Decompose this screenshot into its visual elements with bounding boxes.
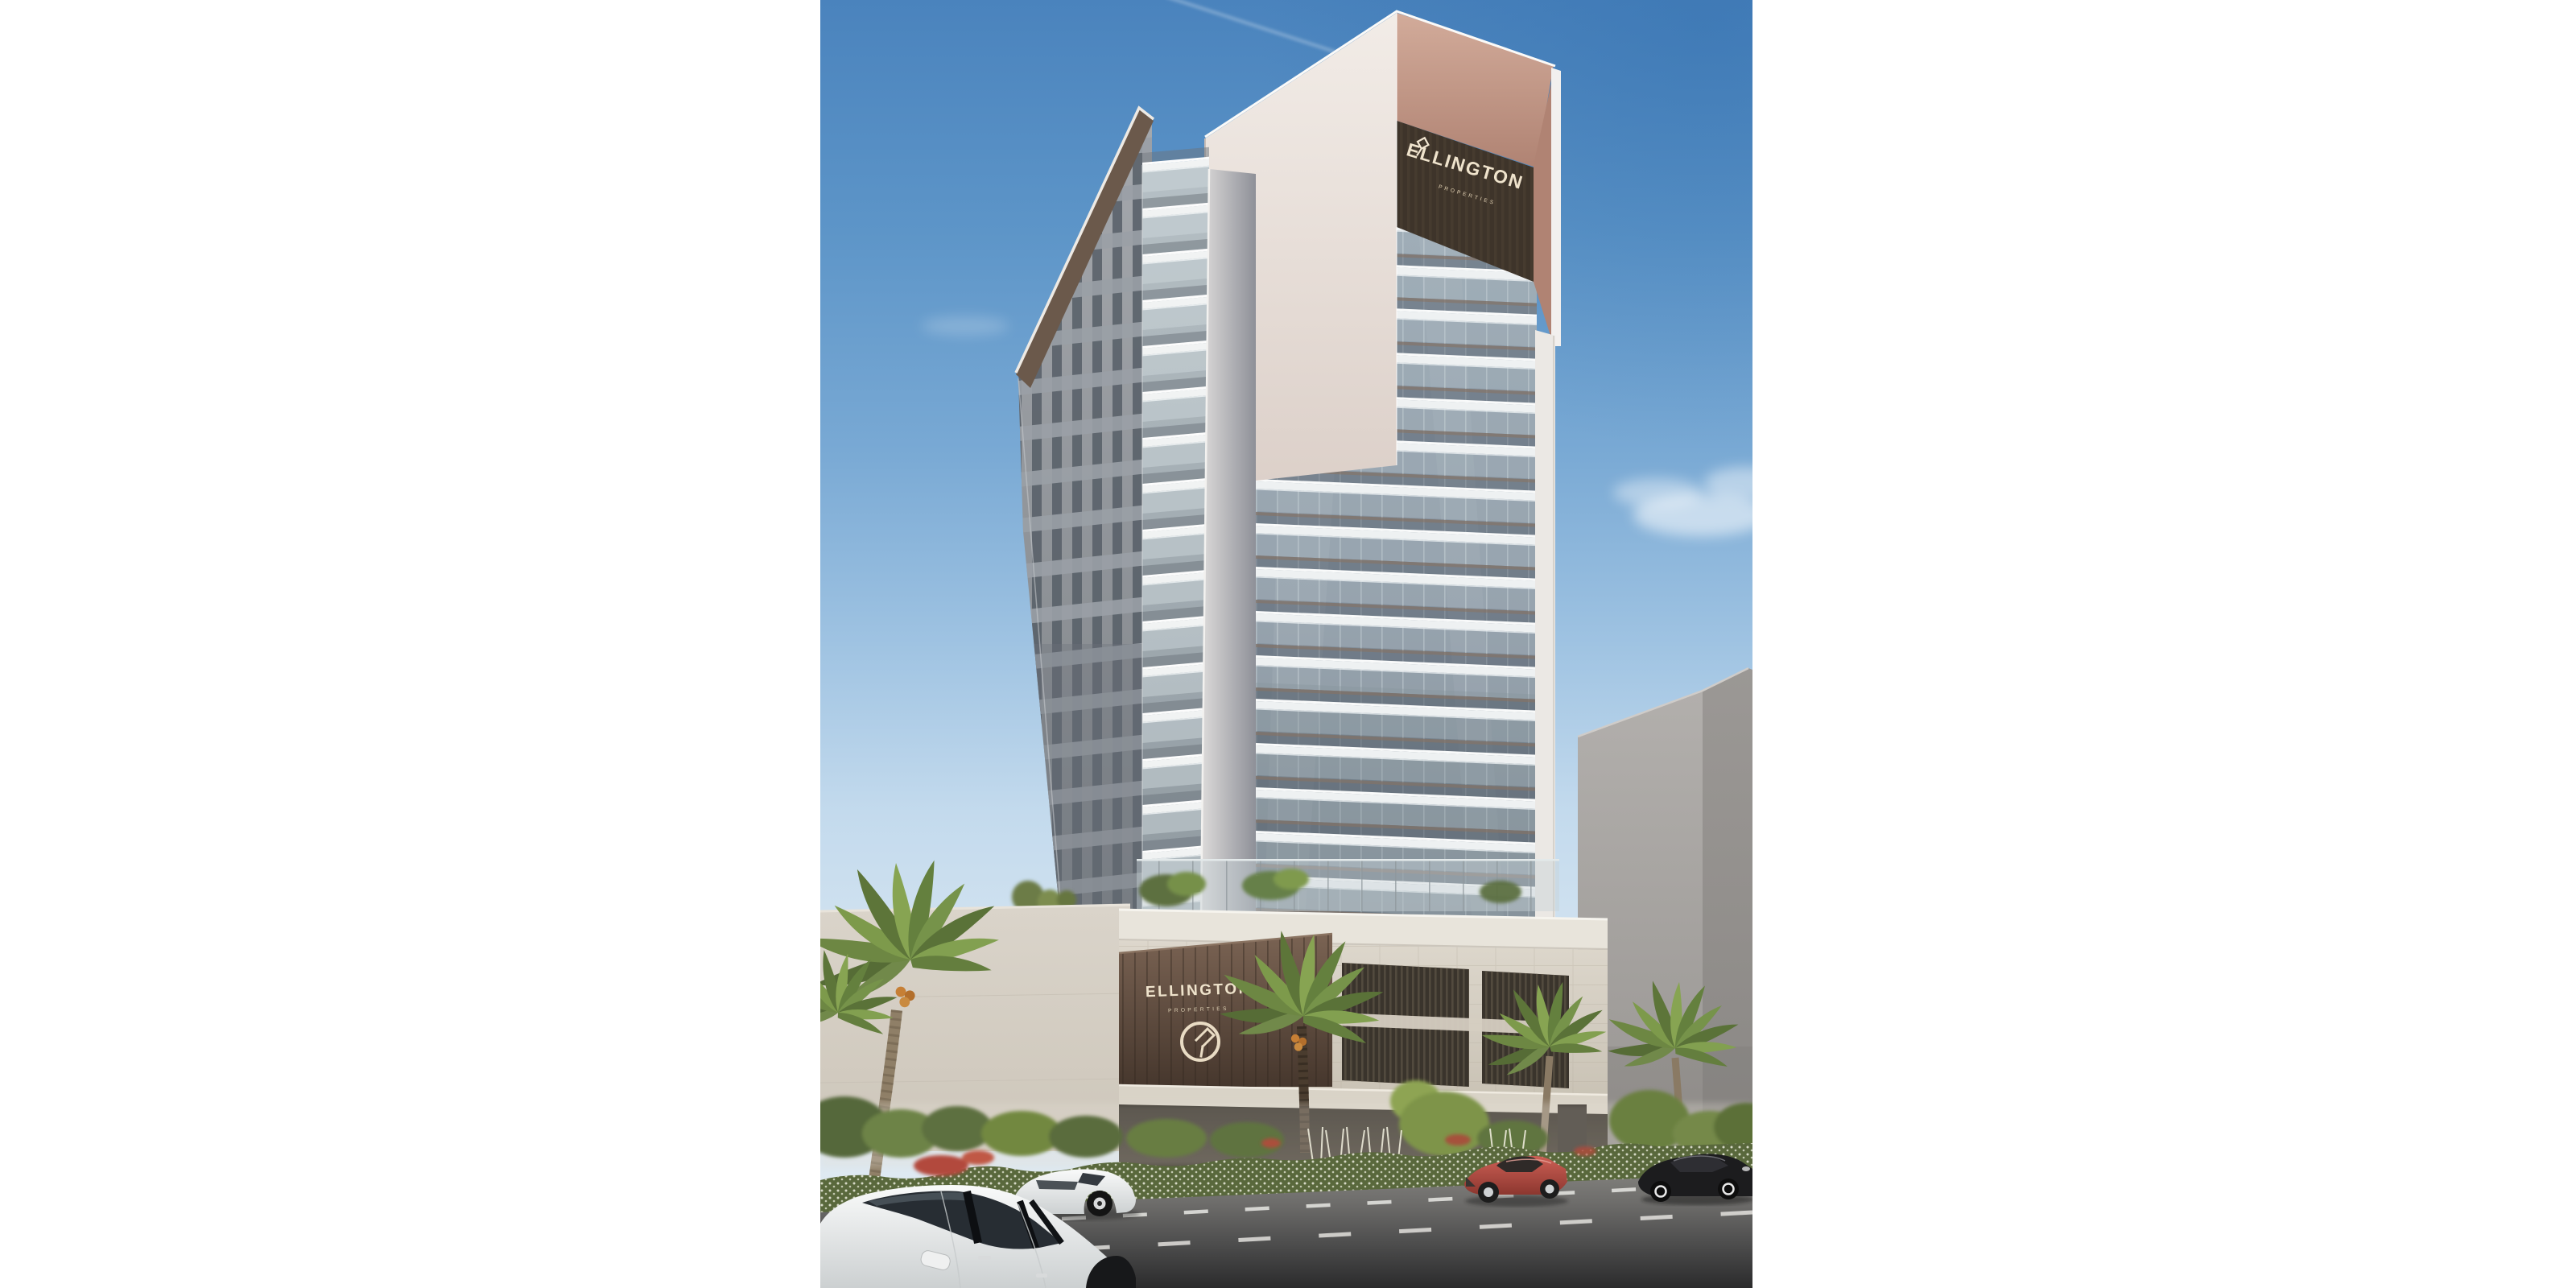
white-canvas: ELLINGTON PROPERTIES bbox=[0, 0, 2576, 1288]
right-edge-pier bbox=[1535, 330, 1555, 918]
crown-right-edge bbox=[1551, 68, 1561, 346]
corner-balcony-stack bbox=[1142, 147, 1209, 927]
center-pier bbox=[1201, 169, 1256, 918]
scene-image: ELLINGTON PROPERTIES bbox=[820, 0, 1752, 1288]
rendering-svg: ELLINGTON PROPERTIES bbox=[820, 0, 1752, 1288]
